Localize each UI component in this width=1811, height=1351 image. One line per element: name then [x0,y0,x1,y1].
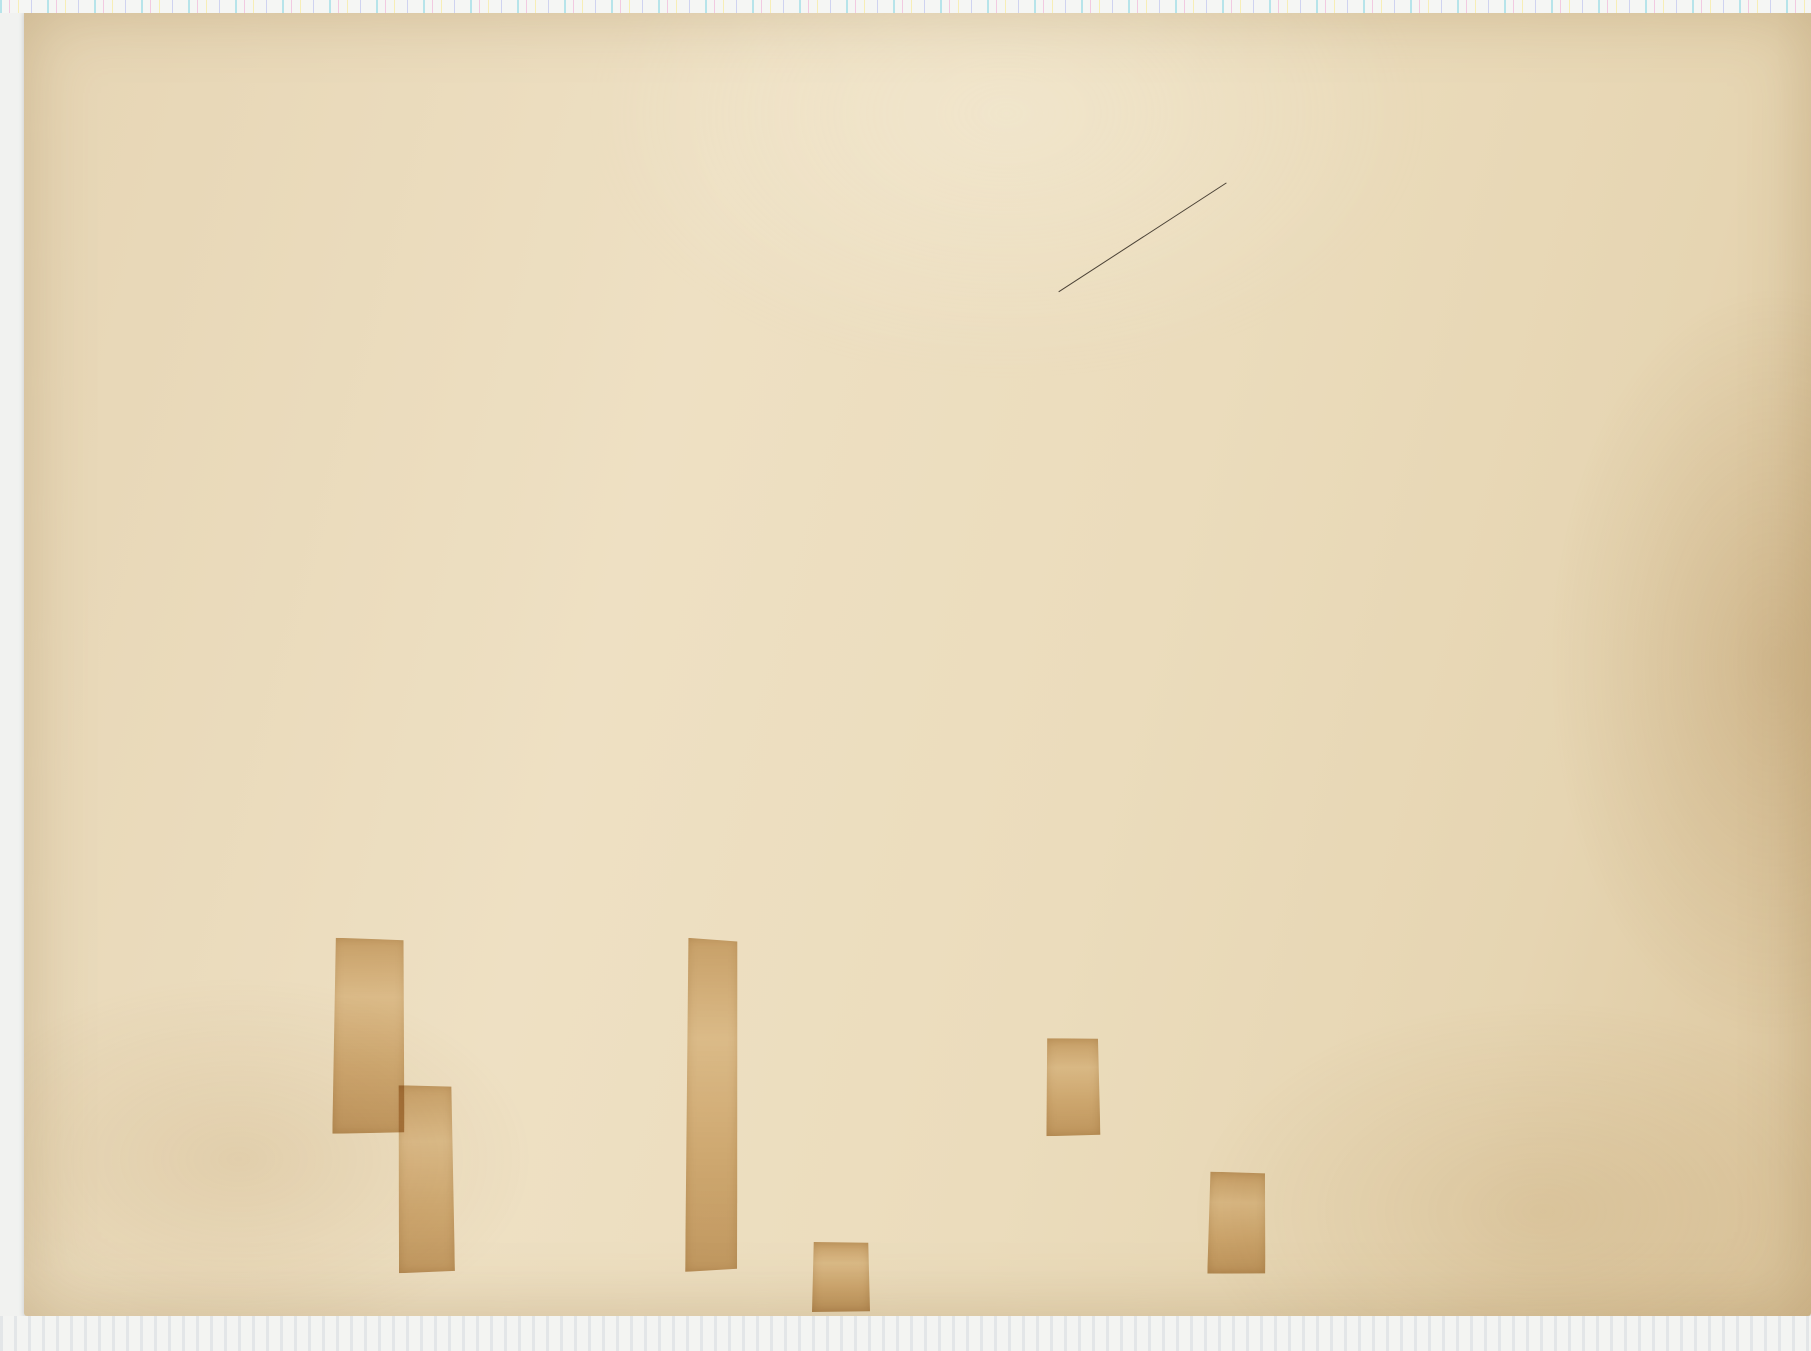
tape-strip [685,938,739,1272]
scanner-noise-top [0,0,1811,13]
scanner-noise-bottom [0,1316,1811,1351]
tape-strip [332,938,405,1134]
tape-strip [812,1242,870,1312]
tape-strip [397,1085,455,1274]
tape-strip [1207,1172,1266,1275]
map-linework [0,0,1811,1351]
scanned-map-sheet [0,0,1811,1351]
tape-strip [1046,1038,1101,1136]
